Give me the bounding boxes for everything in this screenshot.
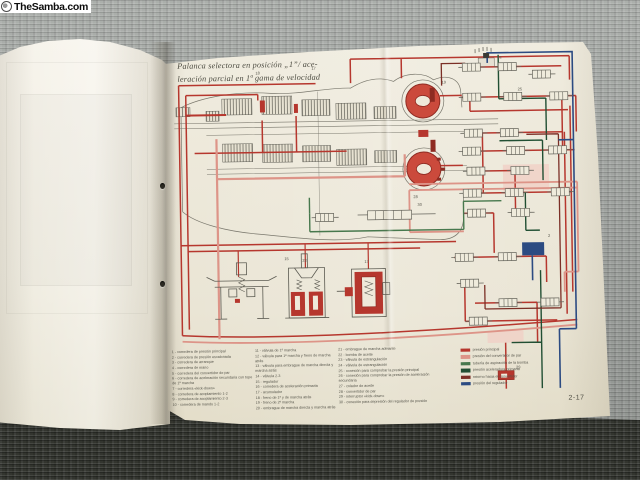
ghost-print [20,94,132,286]
color-legend-row: presión del convertidor de par [461,353,557,359]
legend-column-3: 21 - embrague de marcha adelante22 - bom… [338,346,442,406]
color-label: presión aceleradora primaria [473,367,520,373]
color-swatch [461,355,471,359]
color-label: presión del convertidor de par [473,354,522,360]
legend-column-2: 11 - válvula de 1ª marcha12 - válvula pa… [255,347,337,411]
svg-text:28: 28 [413,194,418,199]
color-swatch [461,369,471,373]
color-legend: presión principalpresión del convertidor… [460,344,557,388]
photo-background: 18 17 19 28 15 22 17 30 29 24 25 2 Palan… [0,0,640,480]
color-legend-row: presión principal [461,346,557,352]
legend-item: 10 - corredera de mando 1-2 [173,401,254,407]
color-swatch [461,362,471,366]
binder-hole [160,281,165,287]
legend-item: 30 - conexión para depresión del regulad… [339,398,442,404]
binder-hole [160,183,165,189]
svg-text:25: 25 [518,86,523,91]
legend: 1 - corredera de presión principal2 - co… [172,343,609,413]
svg-text:2: 2 [548,233,551,238]
color-legend-row: presión aceleradora primaria [461,367,557,373]
color-swatch [461,348,471,352]
svg-text:19: 19 [442,80,447,85]
torque-converter [406,84,442,187]
page-content: 18 17 19 28 15 22 17 30 29 24 25 2 Palan… [165,43,611,425]
watermark: TheSamba.com [0,0,91,13]
left-page [0,34,176,434]
thesamba-logo-icon [1,1,12,12]
color-swatch [461,382,471,386]
svg-text:24: 24 [497,55,502,60]
legend-item: 6 - corredera de aceleración secundaria … [172,375,253,386]
oil-pump-assembly [284,253,329,318]
color-label: presión principal [473,347,500,352]
color-swatch [461,375,471,379]
color-label: retorno hacia el convertidor [473,374,518,380]
diagram-title: Palanca selectora en posición „1”/ ace- … [177,57,407,86]
accumulator-assembly [336,269,390,318]
svg-text:22: 22 [302,258,307,263]
legend-item: 12 - válvula para 1ª marcha y freno de m… [255,353,336,364]
legend-item: 13 - válvula para embrague de marcha dir… [255,363,336,374]
color-legend-row: retorno hacia el convertidor [461,373,557,379]
color-legend-row: presión del regulador [461,380,557,386]
color-label: presión del regulador [473,381,508,386]
governor-pressure-patch [522,242,544,255]
governor-assembly [206,262,277,319]
svg-text:15: 15 [284,256,289,261]
watermark-text: TheSamba.com [14,1,88,13]
legend-item: 20 - embrague de marcha directa y marcha… [256,405,337,411]
svg-text:30: 30 [417,202,422,207]
color-label: tubería de aspiración de la bomba [473,360,529,366]
color-legend-row: tubería de aspiración de la bomba [461,360,557,366]
right-page-foldout: 18 17 19 28 15 22 17 30 29 24 25 2 Palan… [158,36,614,428]
kickdown-valve [358,210,436,220]
legend-column-1: 1 - corredera de presión principal2 - co… [172,349,254,408]
page-number: 2-17 [568,394,584,401]
